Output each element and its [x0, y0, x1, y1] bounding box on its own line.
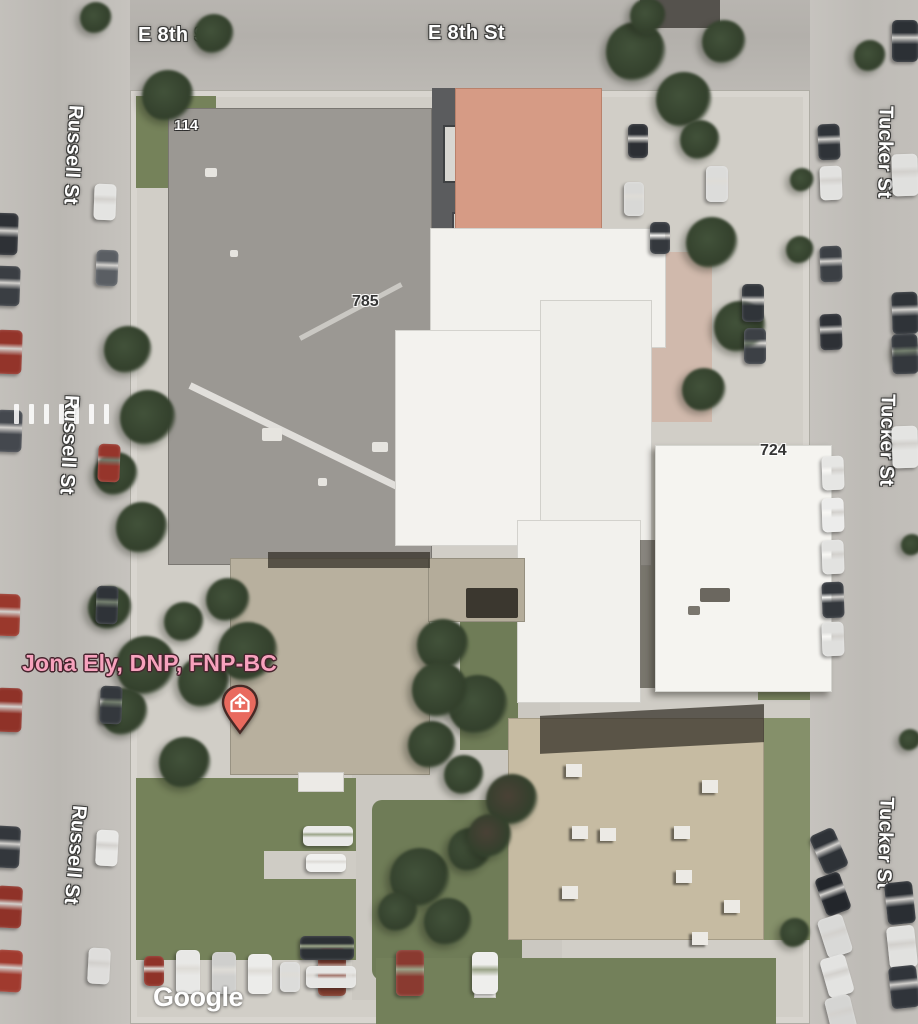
- parked-car: [95, 829, 119, 866]
- tree: [164, 602, 204, 642]
- parked-car: [0, 213, 19, 256]
- crosswalk-stripe: [89, 404, 94, 424]
- google-logo: Google: [153, 982, 243, 1013]
- parked-car: [821, 540, 844, 575]
- crosswalk-stripe: [59, 404, 64, 424]
- tree: [159, 737, 211, 789]
- parked-car: [248, 954, 272, 994]
- parked-car: [628, 124, 648, 158]
- tree: [899, 729, 918, 751]
- parked-car: [892, 20, 918, 62]
- tree: [142, 70, 194, 122]
- parked-car: [891, 154, 918, 197]
- parked-car: [0, 410, 23, 453]
- rooftop-unit: [702, 780, 718, 793]
- building-salmon-roof: [455, 88, 602, 238]
- tree: [206, 578, 250, 622]
- tree: [444, 755, 484, 795]
- rooftop-unit: [600, 828, 616, 841]
- rooftop-speck: [205, 168, 217, 177]
- building-number-785: 785: [352, 293, 379, 311]
- crosswalk-stripe: [74, 404, 79, 424]
- tree: [378, 892, 418, 932]
- parked-car: [821, 498, 844, 533]
- parked-car: [650, 222, 670, 254]
- tree: [790, 168, 814, 192]
- tree: [116, 502, 168, 554]
- parked-car: [0, 688, 23, 733]
- tree: [412, 662, 468, 718]
- parked-car: [744, 328, 766, 364]
- rooftop-speck: [230, 250, 238, 257]
- street-label-e8th-2: E 8th St: [428, 22, 505, 45]
- parked-car: [888, 965, 918, 1010]
- rooftop-speck: [318, 478, 327, 486]
- parked-car: [891, 292, 918, 335]
- lawn-south: [376, 958, 776, 1024]
- parked-car: [95, 250, 118, 287]
- parked-car: [0, 885, 23, 928]
- building-white-roof-724: [655, 445, 832, 692]
- parked-car: [0, 594, 21, 637]
- tree: [682, 368, 726, 412]
- parked-car: [303, 826, 353, 846]
- tree: [702, 20, 746, 64]
- lawn-east-strip-2: [764, 718, 810, 940]
- building-number-724: 724: [760, 442, 787, 460]
- building-white-roof-b: [395, 330, 551, 546]
- satellite-map-canvas[interactable]: E 8th St E 8th St Russell St Russell St …: [0, 0, 918, 1024]
- street-label-tucker-3: Tucker St: [871, 797, 897, 890]
- rooftop-unit: [566, 764, 582, 777]
- crosswalk-stripe: [14, 404, 19, 424]
- rooftop-detail: [700, 588, 730, 602]
- crosswalk-stripe: [29, 404, 34, 424]
- small-white-roof: [298, 772, 344, 792]
- parked-car: [884, 881, 916, 926]
- parked-car: [300, 936, 354, 960]
- parked-car: [821, 456, 844, 491]
- tree: [786, 236, 814, 264]
- parked-car: [819, 314, 842, 351]
- parked-car: [99, 686, 122, 725]
- tree: [854, 40, 886, 72]
- parked-car: [891, 426, 918, 469]
- tree: [680, 120, 720, 160]
- tree: [120, 390, 176, 446]
- tree: [80, 2, 112, 34]
- rooftop-unit: [724, 900, 740, 913]
- parked-car: [819, 166, 842, 201]
- parked-car: [93, 184, 116, 221]
- crosswalk-stripe: [104, 404, 109, 424]
- rooftop-unit: [562, 886, 578, 899]
- parked-car: [0, 266, 21, 307]
- roof-shadow-band: [268, 552, 430, 568]
- parked-car: [742, 284, 764, 322]
- parked-car: [0, 825, 21, 868]
- parked-car: [472, 952, 498, 994]
- parked-car: [891, 334, 918, 375]
- parked-car: [817, 124, 840, 161]
- poi-label[interactable]: Jona Ely, DNP, FNP-BC: [22, 650, 277, 677]
- medical-house-pin-icon[interactable]: [221, 684, 259, 738]
- parked-car: [306, 854, 346, 872]
- rooftop-dark-unit: [466, 588, 518, 618]
- rooftop-unit: [572, 826, 588, 839]
- parked-car: [396, 950, 424, 996]
- parked-car: [819, 246, 842, 283]
- parked-car: [306, 966, 356, 988]
- parked-car: [280, 962, 300, 992]
- tree: [424, 898, 472, 946]
- parked-car: [821, 622, 844, 657]
- tree: [780, 918, 810, 948]
- tree: [901, 534, 918, 556]
- parked-car: [0, 330, 23, 375]
- parked-car: [821, 582, 844, 619]
- rooftop-unit: [676, 870, 692, 883]
- rooftop-detail: [688, 606, 700, 615]
- rooftop-speck: [372, 442, 388, 452]
- parked-car: [97, 444, 120, 483]
- rooftop-speck: [262, 428, 282, 441]
- building-white-roof-d: [517, 520, 641, 703]
- rooftop-unit: [692, 932, 708, 945]
- parked-car: [624, 182, 644, 216]
- tree: [104, 326, 152, 374]
- tree: [194, 14, 234, 54]
- parked-car: [706, 166, 728, 202]
- parked-car: [87, 947, 111, 984]
- tree: [468, 814, 512, 858]
- parked-car: [95, 586, 118, 625]
- parked-car: [0, 949, 23, 992]
- rooftop-unit: [674, 826, 690, 839]
- parked-car: [886, 925, 918, 970]
- tree: [686, 217, 738, 269]
- crosswalk-stripe: [44, 404, 49, 424]
